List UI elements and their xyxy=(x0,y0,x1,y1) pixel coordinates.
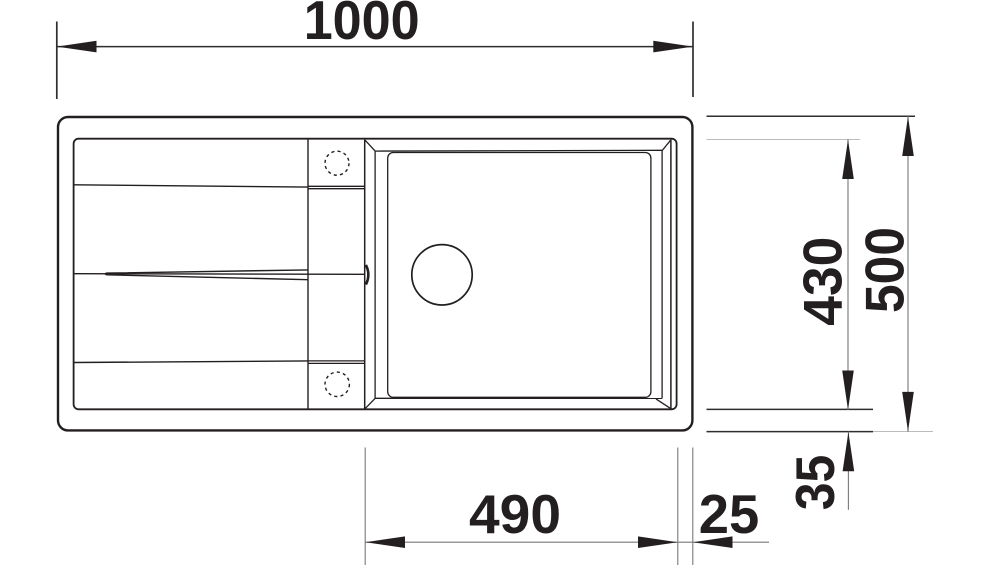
svg-text:500: 500 xyxy=(854,227,916,313)
svg-text:35: 35 xyxy=(784,455,846,511)
svg-text:25: 25 xyxy=(699,483,760,545)
svg-text:430: 430 xyxy=(792,237,854,326)
svg-text:1000: 1000 xyxy=(304,0,420,51)
svg-text:490: 490 xyxy=(469,483,561,545)
